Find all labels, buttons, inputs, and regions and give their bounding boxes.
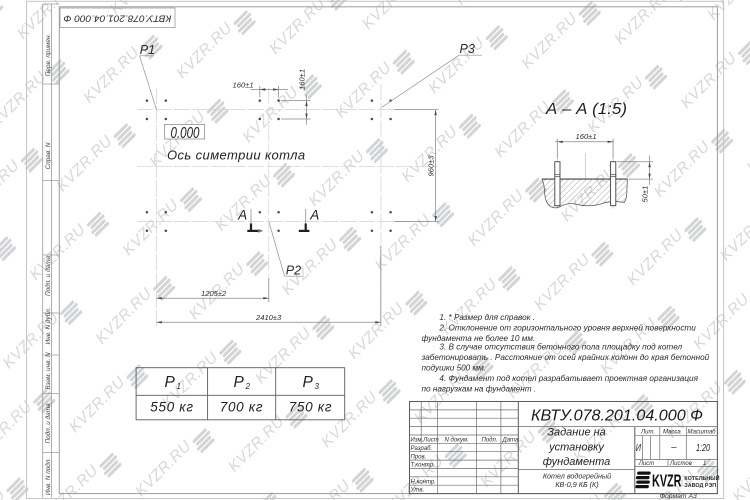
svg-text:Лит.: Лит. xyxy=(640,429,655,435)
svg-text:КВТУ.078.201.04.000 Ф: КВТУ.078.201.04.000 Ф xyxy=(531,408,703,425)
svg-text:КВТУ.078.201.04.000 Ф: КВТУ.078.201.04.000 Ф xyxy=(63,13,172,24)
svg-text:Задание на: Задание на xyxy=(547,427,606,439)
svg-text:Р: Р xyxy=(234,374,245,391)
svg-text:Р1: Р1 xyxy=(140,43,155,57)
svg-text:КВ-0,9 КБ (К): КВ-0,9 КБ (К) xyxy=(555,480,598,489)
svg-text:подушки 500 мм.: подушки 500 мм. xyxy=(422,363,487,372)
svg-text:50±1: 50±1 xyxy=(640,186,649,203)
svg-text:Масса: Масса xyxy=(663,429,681,435)
svg-text:Разраб.: Разраб. xyxy=(411,446,433,452)
svg-text:1. * Размер для справок .: 1. * Размер для справок . xyxy=(439,313,535,322)
svg-text:Подп. и дата: Подп. и дата xyxy=(44,403,52,443)
svg-text:Подп. и дата: Подп. и дата xyxy=(44,256,52,296)
svg-text:750 кг: 750 кг xyxy=(289,400,333,415)
svg-text:Инв. N подл.: Инв. N подл. xyxy=(44,458,52,495)
svg-text:1: 1 xyxy=(177,382,181,391)
svg-text:установку: установку xyxy=(548,442,605,454)
svg-text:Р2: Р2 xyxy=(286,264,301,278)
svg-text:1: 1 xyxy=(703,461,706,467)
svg-text:А: А xyxy=(309,208,319,223)
svg-text:160±1: 160±1 xyxy=(233,80,254,89)
svg-text:Утв.: Утв. xyxy=(410,488,425,494)
svg-text:700 кг: 700 кг xyxy=(220,400,264,415)
svg-text:Р3: Р3 xyxy=(460,42,475,56)
svg-text:550 кг: 550 кг xyxy=(150,400,194,415)
svg-text:Подп.: Подп. xyxy=(482,437,498,443)
svg-text:0.000: 0.000 xyxy=(171,125,200,142)
svg-text:Р: Р xyxy=(303,374,314,391)
svg-text:Дата: Дата xyxy=(502,437,519,443)
svg-text:Пров.: Пров. xyxy=(411,454,427,460)
svg-text:Ось симетрии котла: Ось симетрии котла xyxy=(167,148,305,163)
svg-text:3: 3 xyxy=(315,382,320,391)
svg-text:1:20: 1:20 xyxy=(696,443,710,454)
svg-text:160±1: 160±1 xyxy=(297,69,306,90)
svg-text:Инв. N дубл.: Инв. N дубл. xyxy=(44,308,52,345)
svg-text:160±1: 160±1 xyxy=(576,132,597,141)
svg-text:KVZR: KVZR xyxy=(652,470,682,490)
svg-text:3. В случае отсутствия бетонн: 3. В случае отсутствия бетонного пола пл… xyxy=(439,343,682,352)
svg-text:Р: Р xyxy=(165,374,176,391)
svg-text:1205±2: 1205±2 xyxy=(201,289,227,298)
svg-text:Изм.Лист: Изм.Лист xyxy=(411,437,439,443)
svg-text:фундамента не более 10 мм.: фундамента не более 10 мм. xyxy=(422,334,536,343)
svg-text:Формат А3: Формат А3 xyxy=(660,493,697,500)
svg-text:2: 2 xyxy=(245,382,251,391)
svg-text:Листов: Листов xyxy=(669,461,692,467)
svg-text:А – А (1:5): А – А (1:5) xyxy=(545,101,627,118)
svg-text:Масштаб: Масштаб xyxy=(688,429,717,435)
svg-text:2410±3: 2410±3 xyxy=(255,313,282,322)
svg-text:забетонировать . Расстояние о: забетонировать . Расстояние от осей край… xyxy=(421,353,710,362)
svg-text:–: – xyxy=(670,442,677,453)
svg-text:960±3: 960±3 xyxy=(426,155,435,177)
svg-text:по нагрузкам на фундамент .: по нагрузкам на фундамент . xyxy=(422,384,537,393)
svg-text:N докум.: N докум. xyxy=(445,437,469,443)
svg-text:КОТЕЛЬНЫЙ: КОТЕЛЬНЫЙ xyxy=(684,474,719,482)
svg-text:Взам. инв. N: Взам. инв. N xyxy=(45,352,52,390)
svg-text:Т.контр.: Т.контр. xyxy=(411,463,435,469)
svg-text:4. Фундамент под котел разраб: 4. Фундамент под котел разрабатывает про… xyxy=(439,374,698,383)
svg-text:фундамента: фундамента xyxy=(543,456,611,468)
svg-text:Справ. N: Справ. N xyxy=(45,142,52,169)
svg-text:Перв. примен.: Перв. примен. xyxy=(45,34,52,76)
svg-text:2. Отклонение от горизонтальн: 2. Отклонение от горизонтального уровня … xyxy=(438,324,696,333)
svg-text:Лист: Лист xyxy=(638,461,654,467)
svg-text:ЗАВОД РЭП: ЗАВОД РЭП xyxy=(684,483,716,489)
svg-text:Н.контр.: Н.контр. xyxy=(411,479,436,485)
svg-text:И: И xyxy=(636,442,642,454)
svg-text:А: А xyxy=(237,208,247,223)
